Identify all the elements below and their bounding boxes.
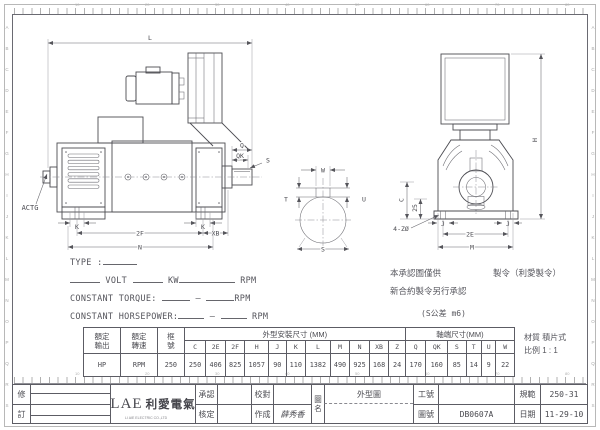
company-logo: LAE 利愛電氣 LI AIE ELECTRIC CO.,LTD <box>110 385 195 423</box>
material-value: 積片式 <box>542 333 566 342</box>
note-line1-b: 製令（利愛製令） <box>493 268 561 278</box>
dim-w: W <box>321 167 325 175</box>
table-value-row: HP RPM 250 250 406 825 1057 90 110 1382 … <box>84 354 515 377</box>
dim-n: N <box>138 244 142 252</box>
spec-torque-line: CONSTANT TORQUE: — RPM <box>70 290 400 308</box>
shaft-tolerance-note: (S公差 m6) <box>421 308 466 319</box>
speed-value: RPM <box>121 354 158 377</box>
logo-text-cn: 利愛電氣 <box>146 396 195 412</box>
rated-output-header: 額定 輸出 <box>84 328 121 354</box>
output-value: HP <box>84 354 121 377</box>
dim-25: 25 <box>411 204 419 212</box>
work-no-value <box>438 385 514 404</box>
drawing-name-label: 圖 名 <box>311 385 324 423</box>
front-view: H C 25 4-ZØ J J 2E M <box>393 54 545 252</box>
side-view: L <box>22 34 270 252</box>
spec-horsepower-line: CONSTANT HORSEPOWER: — RPM <box>70 308 400 326</box>
logo-subtext: LI AIE ELECTRIC CO.,LTD <box>125 416 167 420</box>
revision-label-bottom: 訂 <box>13 404 30 423</box>
drawing-name-value-bottom <box>324 404 413 423</box>
spec-no-label: 規範 <box>514 385 540 404</box>
note-line2: 新合約製令另行承認 <box>390 286 467 296</box>
proof-value <box>273 385 311 404</box>
dim-m: M <box>470 244 474 252</box>
check-label: 核定 <box>195 404 217 423</box>
check-value <box>217 404 251 423</box>
dim-t: T <box>284 196 288 204</box>
type-label: TYPE : <box>70 258 103 268</box>
spec-block: TYPE : VOLT KW RPM CONSTANT TORQUE: — RP… <box>70 254 400 326</box>
made-label: 作成 <box>251 404 273 423</box>
title-block: 修 LAE 利愛電氣 LI AIE ELECTRIC CO.,LTD 承認 校對… <box>12 384 588 424</box>
type-blank <box>103 255 137 265</box>
date-label: 日期 <box>514 404 540 423</box>
material-scale-note: 材質 積片式 比例 1 : 1 <box>524 331 566 357</box>
kw-label: KW <box>168 276 179 286</box>
engineering-drawing-sheet: { "sheet": { "zones": ["A","B","C","D","… <box>0 0 600 430</box>
approval-note: 本承認圖僅供製令（利愛製令） 新合約製令另行承認 <box>390 264 561 300</box>
material-label: 材質 <box>524 333 540 342</box>
frame-value: 250 <box>158 354 185 377</box>
proof-label: 校對 <box>251 385 273 404</box>
mounting-dims-header: 外型安裝尺寸 (MM) <box>184 328 405 341</box>
dim-l: L <box>148 34 152 42</box>
constant-torque-label: CONSTANT TORQUE: <box>70 294 157 304</box>
work-no-label: 工號 <box>413 385 438 404</box>
dim-2f: 2F <box>136 230 144 238</box>
constant-horsepower-label: CONSTANT HORSEPOWER: <box>70 312 178 322</box>
logo-text-en: LAE <box>110 396 142 413</box>
scale-value: 1 : 1 <box>542 346 558 355</box>
spec-rating-line: VOLT KW RPM <box>70 272 400 290</box>
spec-type-line: TYPE : <box>70 254 400 272</box>
table-group-header-row: 額定 輸出 額定 轉速 框 號 外型安裝尺寸 (MM) 軸端尺寸(MM) <box>84 328 515 341</box>
dimension-table: 額定 輸出 額定 轉速 框 號 外型安裝尺寸 (MM) 軸端尺寸(MM) C 2… <box>83 327 515 377</box>
drawing-no-value: DB0607A <box>438 404 514 423</box>
dim-qk: QK <box>236 152 244 160</box>
dim-c: C <box>398 198 406 202</box>
date-value: 11-29-10 <box>540 404 587 423</box>
approve-value <box>217 385 251 404</box>
drawing-name-value: 外型圖 <box>324 385 413 404</box>
dim-2e: 2E <box>466 231 474 239</box>
made-value: 薛秀香 <box>273 404 311 423</box>
volt-label: VOLT <box>105 276 127 286</box>
approve-label: 承認 <box>195 385 217 404</box>
shaft-end-view: T U W S <box>284 166 366 254</box>
dim-s-end: S <box>321 246 325 254</box>
dim-h: H <box>531 138 539 142</box>
dim-holes: 4-ZØ <box>393 225 409 233</box>
shaft-dims-header: 軸端尺寸(MM) <box>405 328 514 341</box>
drawing-no-label: 圖號 <box>413 404 438 423</box>
dim-q: Q <box>240 142 244 150</box>
frame-no-header: 框 號 <box>158 328 185 354</box>
revision-lines-area <box>30 385 110 423</box>
revision-label-top: 修 <box>13 385 30 404</box>
scale-label: 比例 <box>524 346 540 355</box>
rated-speed-header: 額定 轉速 <box>121 328 158 354</box>
note-line1-a: 本承認圖僅供 <box>390 268 441 278</box>
spec-no-value: 250-31 <box>540 385 587 404</box>
dim-u: U <box>362 196 366 204</box>
rpm-label: RPM <box>240 276 256 286</box>
label-actg: ACTG <box>22 204 39 212</box>
dim-s-side: S <box>266 157 270 165</box>
